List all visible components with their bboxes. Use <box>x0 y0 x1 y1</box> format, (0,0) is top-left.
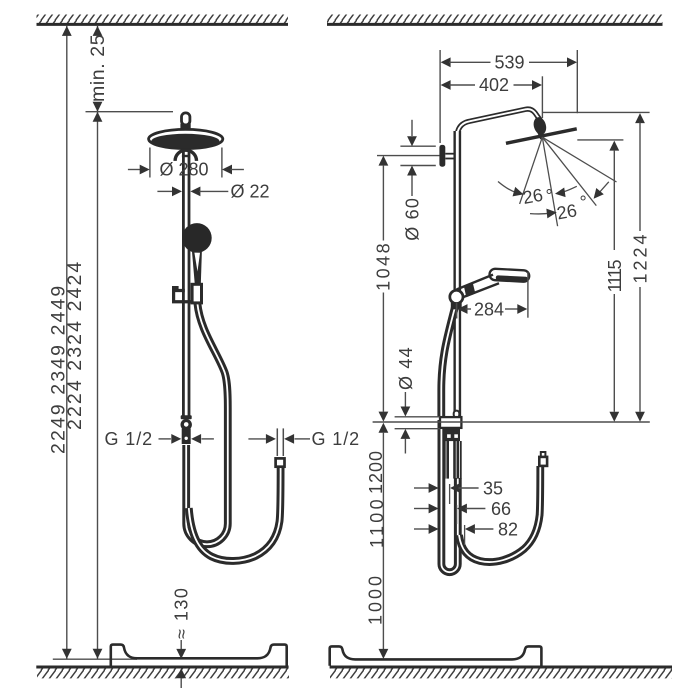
svg-text:66: 66 <box>491 499 511 519</box>
svg-text:1224: 1224 <box>630 231 650 283</box>
svg-text:1000: 1000 <box>366 573 386 625</box>
svg-text:82: 82 <box>498 520 518 540</box>
svg-text:G 1/2: G 1/2 <box>105 429 154 449</box>
svg-text:2224 2324 2424: 2224 2324 2424 <box>64 260 86 430</box>
svg-text:min. 25: min. 25 <box>87 34 109 102</box>
svg-text:26: 26 <box>521 185 544 208</box>
svg-text:Ø 22: Ø 22 <box>231 182 270 202</box>
svg-text:1115: 1115 <box>605 260 625 293</box>
svg-text:°: ° <box>580 193 587 213</box>
svg-text:284: 284 <box>474 300 504 320</box>
svg-text:°: ° <box>546 186 553 206</box>
svg-text:G 1/2: G 1/2 <box>312 429 361 449</box>
svg-text:26: 26 <box>555 200 578 223</box>
svg-text:1048: 1048 <box>374 241 394 291</box>
svg-text:Ø 44: Ø 44 <box>396 346 416 390</box>
svg-text:1200: 1200 <box>366 450 386 494</box>
svg-text:1100: 1100 <box>367 496 387 548</box>
svg-text:35: 35 <box>483 479 503 499</box>
svg-text:402: 402 <box>479 75 509 95</box>
svg-text:539: 539 <box>495 53 525 73</box>
svg-text:≈ 130: ≈ 130 <box>172 587 192 639</box>
svg-text:Ø 60: Ø 60 <box>403 197 423 241</box>
svg-text:Ø 280: Ø 280 <box>160 160 209 180</box>
